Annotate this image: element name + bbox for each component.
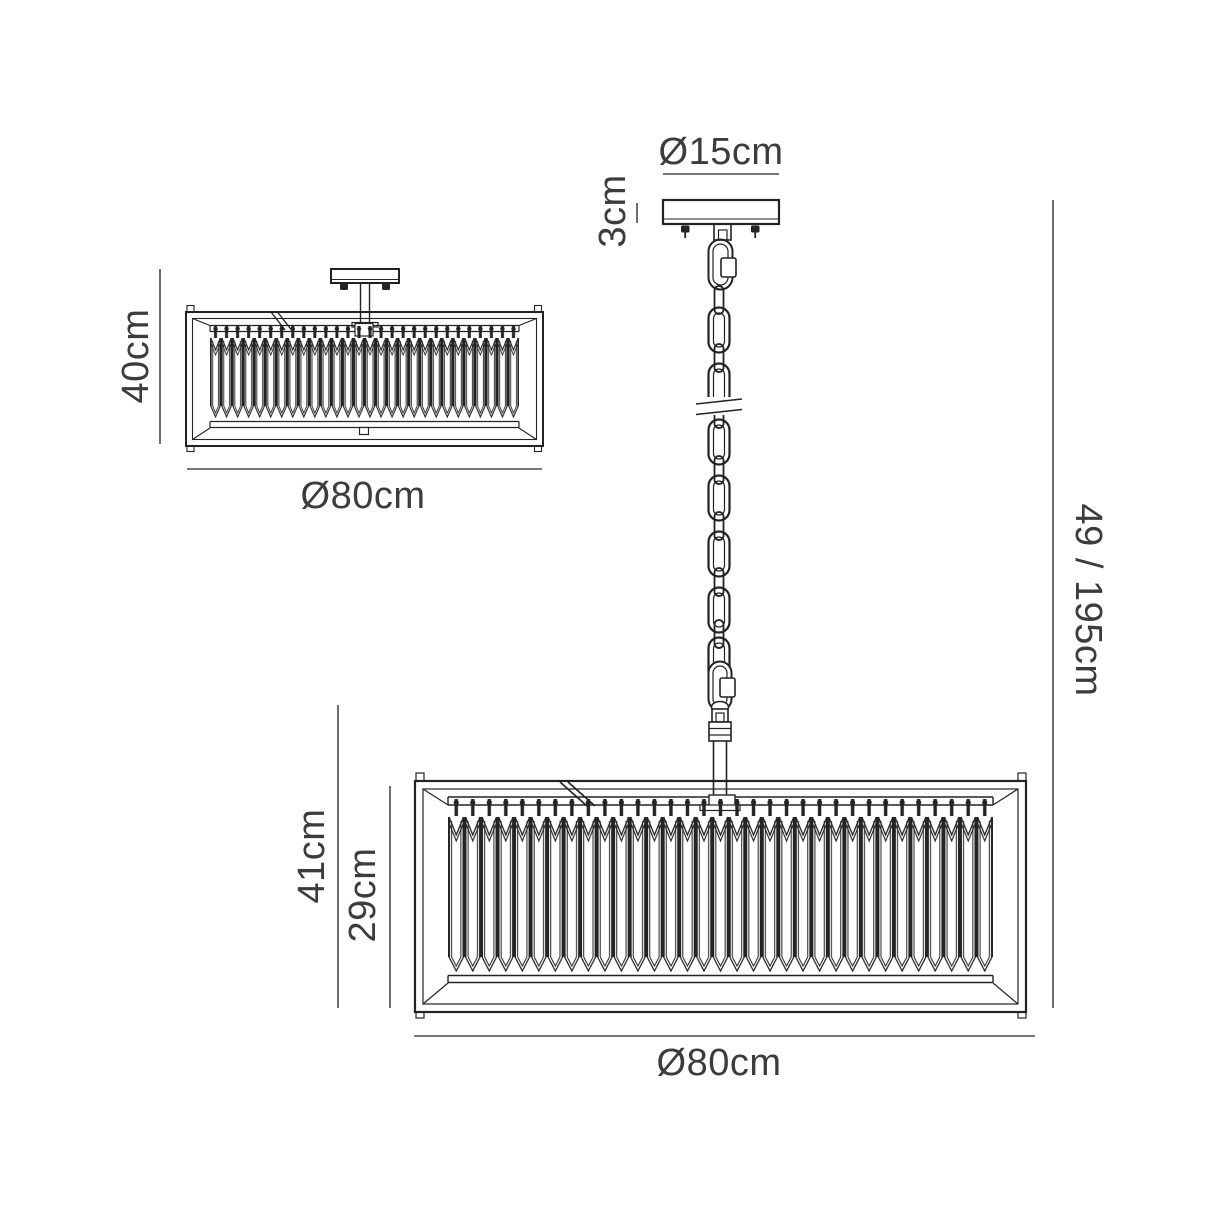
canopy-height-label: 3cm (594, 174, 632, 247)
semi-flush-view (186, 269, 543, 452)
pendant-body-height-outer-label: 41cm (293, 809, 331, 904)
top-carabiner (709, 240, 737, 290)
pendant-body-height-inner-label: 29cm (344, 848, 382, 943)
pendant-width-label: Ø80cm (657, 1044, 782, 1082)
total-drop-label: 49 / 195cm (1069, 504, 1107, 697)
pendant-view (415, 200, 1026, 1018)
canopy-diameter-label: Ø15cm (659, 133, 784, 171)
dimension-drawing-canvas: Ø15cm 3cm 40cm Ø80cm 41cm 29cm Ø80cm 49 … (0, 0, 1214, 1214)
semi-flush-crystals (210, 326, 519, 418)
pendant-crystals (448, 799, 993, 973)
semi-flush-canopy (331, 269, 399, 290)
semi-flush-height-label: 40cm (117, 309, 155, 404)
chain (696, 286, 742, 683)
semi-flush-stem (352, 283, 378, 327)
pendant-canopy (663, 200, 779, 240)
chain-break-mark (696, 397, 742, 415)
bottom-carabiner-and-rod (709, 662, 736, 796)
semi-flush-width-label: Ø80cm (301, 477, 426, 515)
